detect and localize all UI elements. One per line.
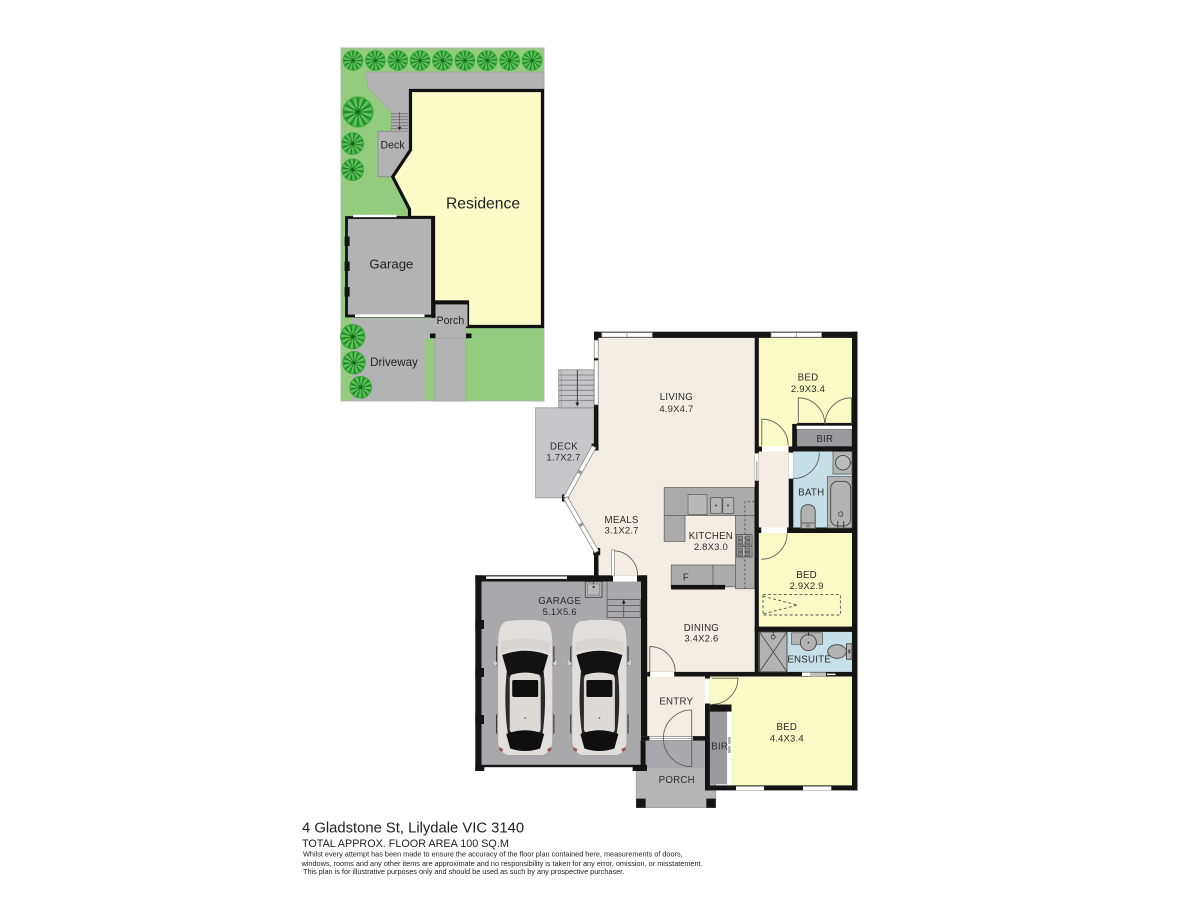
svg-text:ENTRY: ENTRY: [659, 697, 693, 708]
svg-text:BIR: BIR: [711, 742, 728, 753]
svg-text:5.1X5.6: 5.1X5.6: [543, 607, 577, 618]
svg-text:This plan is for illustrative: This plan is for illustrative purposes o…: [303, 867, 624, 876]
svg-text:BED: BED: [776, 722, 797, 733]
svg-text:2.9X2.9: 2.9X2.9: [790, 581, 824, 592]
svg-text:2.8X3.0: 2.8X3.0: [694, 542, 728, 553]
svg-text:Residence: Residence: [446, 195, 520, 212]
svg-text:Whilst every attempt has been: Whilst every attempt has been made to en…: [303, 850, 683, 859]
svg-text:BIR: BIR: [816, 434, 833, 445]
svg-text:3.1X2.7: 3.1X2.7: [605, 526, 639, 537]
svg-text:MEALS: MEALS: [605, 515, 639, 526]
svg-text:KITCHEN: KITCHEN: [689, 531, 733, 542]
svg-text:ENSUITE: ENSUITE: [787, 655, 831, 666]
svg-text:BED: BED: [798, 373, 819, 384]
svg-text:Deck: Deck: [381, 140, 406, 152]
svg-text:4.9X4.7: 4.9X4.7: [659, 404, 693, 415]
svg-text:4 Gladstone St, Lilydale VIC 3: 4 Gladstone St, Lilydale VIC 3140: [302, 821, 524, 837]
svg-text:BATH: BATH: [798, 488, 824, 499]
svg-text:GARAGE: GARAGE: [538, 596, 581, 607]
svg-text:2.9X3.4: 2.9X3.4: [791, 384, 825, 395]
svg-text:1.7X2.7: 1.7X2.7: [546, 453, 580, 464]
svg-text:TOTAL APPROX. FLOOR AREA 100 S: TOTAL APPROX. FLOOR AREA 100 SQ.M: [302, 838, 509, 850]
svg-text:BED: BED: [796, 570, 817, 581]
svg-text:DINING: DINING: [684, 623, 719, 634]
svg-text:LIVING: LIVING: [660, 392, 693, 403]
svg-text:Porch: Porch: [437, 315, 465, 327]
svg-text:PORCH: PORCH: [659, 775, 695, 786]
svg-text:3.4X2.6: 3.4X2.6: [684, 633, 718, 644]
svg-text:Driveway: Driveway: [370, 356, 418, 369]
svg-text:4.4X3.4: 4.4X3.4: [770, 733, 804, 744]
svg-text:F: F: [683, 573, 689, 584]
svg-text:DECK: DECK: [550, 442, 578, 453]
svg-text:Garage: Garage: [369, 256, 413, 271]
